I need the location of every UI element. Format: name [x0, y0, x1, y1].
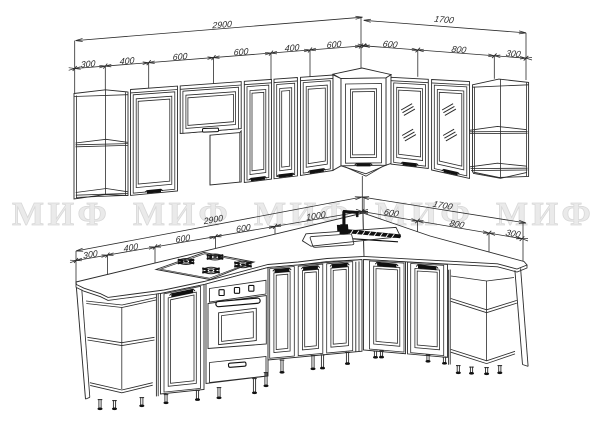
svg-text:2900: 2900 — [211, 19, 232, 31]
svg-text:300: 300 — [505, 48, 522, 59]
svg-text:600: 600 — [173, 51, 188, 62]
svg-text:400: 400 — [285, 42, 300, 53]
svg-text:600: 600 — [382, 39, 399, 50]
svg-text:600: 600 — [234, 46, 249, 57]
svg-text:400: 400 — [120, 55, 135, 66]
svg-text:МИФ: МИФ — [12, 196, 110, 233]
svg-text:300: 300 — [81, 58, 96, 69]
svg-text:800: 800 — [451, 44, 468, 55]
svg-text:1700: 1700 — [433, 14, 455, 25]
svg-text:600: 600 — [327, 39, 342, 50]
